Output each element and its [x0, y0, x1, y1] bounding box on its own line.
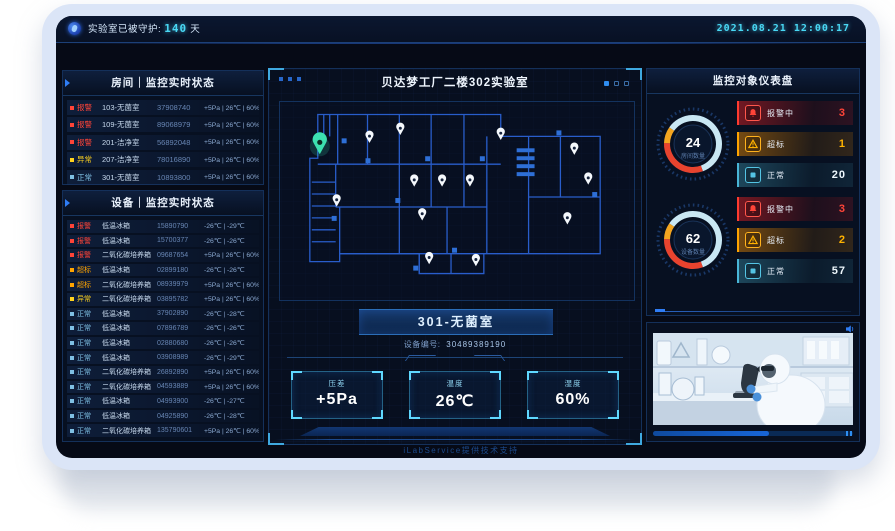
sensor-pin-icon[interactable]: [563, 212, 571, 224]
status-dot-icon: [70, 312, 74, 316]
code-cell: 02880680: [157, 340, 204, 347]
dashboard-screen: 实验室已被守护: 140 天 2021.08.21 12:00:17 房间｜监控…: [56, 16, 866, 458]
code-cell: 56892048: [157, 138, 204, 147]
sensor-pin-icon[interactable]: [396, 123, 404, 135]
name-cell: 二氧化碳培养箱: [101, 426, 157, 436]
name-cell: 低温冰箱: [101, 396, 157, 406]
metrics-cell: -26℃ | -26℃: [204, 324, 259, 332]
square-icon: [748, 266, 758, 276]
status-dot-icon: [70, 123, 74, 127]
status-dot-icon: [70, 158, 74, 162]
square-icon: [748, 170, 758, 180]
name-cell: 二氧化碳培养箱: [101, 294, 157, 304]
name-cell: 207-洁净室: [101, 154, 157, 165]
code-cell: 15700377: [157, 237, 204, 244]
status-dot-icon: [70, 399, 74, 403]
status-stat-alarm: 报警中3: [737, 101, 853, 125]
code-cell: 37908740: [157, 103, 204, 112]
sensor-pin-icon[interactable]: [438, 174, 446, 186]
devices-table: 报警低温冰箱15890790-26℃ | -29℃报警低温冰箱15700377-…: [63, 216, 263, 441]
pagination-dot[interactable]: [614, 81, 619, 86]
metrics-cell: +5Pa | 26℃ | 60%: [204, 138, 259, 146]
alarm-icon: [745, 201, 761, 217]
status-cell: 正常: [67, 338, 101, 348]
sensor-pin-icon[interactable]: [365, 131, 373, 143]
name-cell: 201-洁净室: [101, 137, 157, 148]
lab-title: 贝达梦工厂二楼302实验室: [269, 69, 641, 97]
status-cell: 正常: [67, 323, 101, 333]
bottom-decor-bar: [300, 427, 610, 436]
status-dot-icon: [70, 239, 74, 243]
code-cell: 04993900: [157, 398, 204, 405]
status-dot-icon: [70, 175, 74, 179]
name-cell: 低温冰箱: [101, 353, 157, 363]
stat-value: 3: [839, 203, 846, 215]
stat-value: 3: [839, 107, 846, 119]
device-number-line: 设备编号: 30489389190: [269, 339, 641, 350]
stat-label: 正常: [767, 170, 785, 181]
status-stat-normal: 正常57: [737, 259, 853, 283]
status-dot-icon: [70, 140, 74, 144]
metrics-cell: -26℃ | -29℃: [204, 222, 259, 230]
datetime: 2021.08.21 12:00:17: [717, 16, 850, 42]
panel-arrow-icon: [65, 199, 70, 207]
name-cell: 低温冰箱: [101, 309, 157, 319]
status-dot-icon: [70, 414, 74, 418]
table-row[interactable]: 正常低温冰箱37902890-26℃ | -28℃: [67, 308, 259, 321]
sensor-pin-icon[interactable]: [570, 143, 578, 155]
name-cell: 301-无菌室: [101, 172, 157, 183]
environment-metrics: 压差 +5Pa 温度 26℃ 湿度 60%: [291, 371, 619, 419]
status-cell: 异常: [67, 154, 101, 165]
devices-status-panel: 设备｜监控实时状态 报警低温冰箱15890790-26℃ | -29℃报警低温冰…: [62, 190, 264, 442]
metrics-cell: +5Pa | 26℃ | 60%: [204, 104, 259, 112]
warning-triangle-icon: [748, 139, 758, 149]
name-cell: 二氧化碳培养箱: [101, 367, 157, 377]
code-cell: 37902890: [157, 310, 204, 317]
status-cell: 正常: [67, 411, 101, 421]
table-row[interactable]: 超标低温冰箱02899180-26℃ | -26℃: [67, 264, 259, 277]
code-cell: 02899180: [157, 267, 204, 274]
code-cell: 15890790: [157, 223, 204, 230]
table-row[interactable]: 报警低温冰箱15700377-26℃ | -26℃: [67, 235, 259, 248]
status-dot-icon: [70, 253, 74, 257]
metrics-cell: +5Pa | 26℃ | 60%: [204, 173, 259, 181]
status-stat-alarm: 报警中3: [737, 197, 853, 221]
metrics-cell: +5Pa | 26℃ | 60%: [204, 156, 259, 164]
panel-arrow-icon: [65, 79, 70, 87]
gauge-label: 房间数量: [681, 152, 705, 160]
speaker-icon[interactable]: [845, 325, 855, 333]
table-row[interactable]: 报警201-洁净室56892048+5Pa | 26℃ | 60%: [67, 135, 259, 150]
status-dot-icon: [70, 341, 74, 345]
pagination-dot[interactable]: [604, 81, 609, 86]
over-icon: [745, 136, 761, 152]
name-cell: 二氧化碳培养箱: [101, 382, 157, 392]
metrics-cell: +5Pa | 26℃ | 60%: [204, 295, 259, 303]
stat-label: 正常: [767, 266, 785, 277]
name-cell: 低温冰箱: [101, 323, 157, 333]
normal-icon: [745, 167, 761, 183]
selected-room-label: 301-无菌室: [359, 309, 553, 335]
donut-gauge: 62设备数量: [651, 197, 735, 283]
lab-video-card: [646, 322, 860, 442]
status-cell: 超标: [67, 265, 101, 275]
status-cell: 正常: [67, 309, 101, 319]
status-stat-normal: 正常20: [737, 163, 853, 187]
status-dot-icon: [70, 429, 74, 433]
floor-plan-map[interactable]: [280, 102, 632, 298]
name-cell: 二氧化碳培养箱: [101, 280, 157, 290]
divider-decor: [287, 357, 623, 358]
name-cell: 二氧化碳培养箱: [101, 250, 157, 260]
name-cell: 低温冰箱: [101, 411, 157, 421]
guard-days-text: 实验室已被守护: 140 天: [88, 16, 200, 42]
page: 实验室已被守护: 140 天 2021.08.21 12:00:17 房间｜监控…: [0, 0, 895, 531]
table-row[interactable]: 超标二氧化碳培养箱08939979+5Pa | 26℃ | 60%: [67, 278, 259, 291]
name-cell: 103-无菌室: [101, 102, 157, 113]
table-row[interactable]: 正常低温冰箱07896789-26℃ | -26℃: [67, 322, 259, 335]
lab-camera-image[interactable]: [653, 333, 853, 425]
bottom-decor-line: [275, 439, 635, 440]
bell-icon: [748, 204, 758, 214]
status-cell: 正常: [67, 382, 101, 392]
metric-label: 温度: [410, 378, 500, 389]
table-row[interactable]: 报警109-无菌室89068979+5Pa | 26℃ | 60%: [67, 117, 259, 132]
gauges-panel-title: 监控对象仪表盘: [647, 69, 859, 94]
lab-map-panel: 贝达梦工厂二楼302实验室: [268, 68, 642, 445]
table-row[interactable]: 报警低温冰箱15890790-26℃ | -29℃: [67, 220, 259, 233]
status-cell: 正常: [67, 353, 101, 363]
bell-icon: [748, 108, 758, 118]
rooms-status-panel: 房间｜监控实时状态 报警103-无菌室37908740+5Pa | 26℃ | …: [62, 70, 264, 185]
metrics-cell: -26℃ | -26℃: [204, 237, 259, 245]
sensor-pin-icon[interactable]: [425, 252, 433, 264]
status-cell: 报警: [67, 137, 101, 148]
status-cell: 正常: [67, 367, 101, 377]
metric-value: 60%: [528, 391, 618, 409]
stat-value: 2: [839, 234, 846, 246]
app-logo-icon: [68, 22, 81, 35]
code-cell: 04593889: [157, 383, 204, 390]
corner-bracket-icon: [626, 68, 642, 80]
rooms-panel-title: 房间｜监控实时状态: [63, 71, 263, 96]
pagination-dot[interactable]: [624, 81, 629, 86]
table-row[interactable]: 正常低温冰箱04925890-26℃ | -28℃: [67, 410, 259, 423]
metric-label: 湿度: [528, 378, 618, 389]
table-row[interactable]: 正常二氧化碳培养箱26892890+5Pa | 26℃ | 60%: [67, 366, 259, 379]
status-stat-over: 超标1: [737, 132, 853, 156]
panel-foot-line: [655, 311, 851, 312]
sensor-pin-icon[interactable]: [584, 172, 592, 184]
status-cell: 正常: [67, 396, 101, 406]
table-row[interactable]: 正常301-无菌室10893800+5Pa | 26℃ | 60%: [67, 170, 259, 185]
gauge-value: 62: [686, 231, 700, 246]
status-dot-icon: [70, 297, 74, 301]
gauge-group: 24房间数量报警中3超标1正常20: [647, 94, 859, 190]
name-cell: 低温冰箱: [101, 265, 157, 275]
donut-gauge: 24房间数量: [651, 101, 735, 187]
metrics-cell: +5Pa | 26℃ | 60%: [204, 383, 259, 391]
code-cell: 78016890: [157, 155, 204, 164]
pause-button[interactable]: [846, 431, 852, 436]
metric-box: 压差 +5Pa: [291, 371, 383, 419]
sensor-pin-icon[interactable]: [418, 208, 426, 220]
gauge-stats: 报警中3超标2正常57: [737, 197, 853, 283]
sensor-pin-icon[interactable]: [466, 174, 474, 186]
status-cell: 报警: [67, 236, 101, 246]
video-progress-fill: [653, 431, 769, 436]
status-dot-icon: [70, 283, 74, 287]
gauge-stats: 报警中3超标1正常20: [737, 101, 853, 187]
metrics-cell: -26℃ | -29℃: [204, 354, 259, 362]
alarm-icon: [745, 105, 761, 121]
metric-value: +5Pa: [292, 391, 382, 409]
name-cell: 低温冰箱: [101, 236, 157, 246]
stat-label: 超标: [767, 139, 785, 150]
metrics-cell: +5Pa | 26℃ | 60%: [204, 427, 259, 435]
stat-label: 报警中: [767, 204, 794, 215]
table-row[interactable]: 正常二氧化碳培养箱04593889+5Pa | 26℃ | 60%: [67, 381, 259, 394]
guard-unit: 天: [190, 24, 200, 35]
metrics-cell: -26℃ | -28℃: [204, 310, 259, 318]
device-number-label: 设备编号:: [404, 340, 441, 349]
table-row[interactable]: 异常二氧化碳培养箱03895782+5Pa | 26℃ | 60%: [67, 293, 259, 306]
gauge-value: 24: [686, 135, 701, 150]
top-bar: 实验室已被守护: 140 天 2021.08.21 12:00:17: [56, 16, 866, 43]
stat-value: 57: [832, 265, 846, 277]
status-cell: 报警: [67, 221, 101, 231]
stat-value: 20: [832, 169, 846, 181]
stat-value: 1: [839, 138, 846, 150]
deco-ticks: [279, 77, 305, 81]
code-cell: 09687654: [157, 252, 204, 259]
footer-credit: iLabService提供技术支持: [56, 445, 866, 456]
code-cell: 07896789: [157, 325, 204, 332]
map-pins[interactable]: [333, 123, 593, 267]
status-dot-icon: [70, 356, 74, 360]
metrics-cell: +5Pa | 26℃ | 60%: [204, 121, 259, 129]
status-dot-icon: [70, 326, 74, 330]
normal-icon: [745, 263, 761, 279]
code-cell: 135790601: [157, 427, 204, 434]
status-dot-icon: [70, 106, 74, 110]
table-row[interactable]: 正常低温冰箱02880680-26℃ | -26℃: [67, 337, 259, 350]
rooms-table: 报警103-无菌室37908740+5Pa | 26℃ | 60%报警109-无…: [63, 96, 263, 189]
metric-value: 26℃: [410, 391, 500, 411]
status-cell: 报警: [67, 250, 101, 260]
status-dot-icon: [70, 370, 74, 374]
floor-plan: [279, 101, 635, 301]
table-row[interactable]: 正常二氧化碳培养箱135790601+5Pa | 26℃ | 60%: [67, 424, 259, 437]
table-row[interactable]: 正常低温冰箱03908989-26℃ | -29℃: [67, 351, 259, 364]
metrics-cell: +5Pa | 26℃ | 60%: [204, 281, 259, 289]
sensor-pin-icon[interactable]: [410, 174, 418, 186]
code-cell: 26892890: [157, 369, 204, 376]
name-cell: 低温冰箱: [101, 338, 157, 348]
over-icon: [745, 232, 761, 248]
metrics-cell: -26℃ | -26℃: [204, 339, 259, 347]
status-cell: 正常: [67, 426, 101, 436]
devices-panel-title: 设备｜监控实时状态: [63, 191, 263, 216]
metrics-cell: -26℃ | -27℃: [204, 397, 259, 405]
metric-label: 压差: [292, 378, 382, 389]
metric-box: 温度 26℃: [409, 371, 501, 419]
pagination-dots: [604, 81, 629, 86]
code-cell: 03908989: [157, 354, 204, 361]
stat-label: 报警中: [767, 108, 794, 119]
status-cell: 报警: [67, 119, 101, 130]
table-row[interactable]: 报警103-无菌室37908740+5Pa | 26℃ | 60%: [67, 100, 259, 115]
metrics-cell: +5Pa | 26℃ | 60%: [204, 251, 259, 259]
selected-room-pin-icon[interactable]: [310, 132, 330, 156]
table-row[interactable]: 正常低温冰箱04993900-26℃ | -27℃: [67, 395, 259, 408]
code-cell: 03895782: [157, 296, 204, 303]
metrics-cell: -26℃ | -26℃: [204, 266, 259, 274]
sensor-pin-icon[interactable]: [472, 254, 480, 266]
status-dot-icon: [70, 224, 74, 228]
sensor-pin-icon[interactable]: [497, 128, 505, 140]
status-dot-icon: [70, 268, 74, 272]
code-cell: 10893800: [157, 173, 204, 182]
code-cell: 04925890: [157, 413, 204, 420]
metrics-cell: +5Pa | 26℃ | 60%: [204, 368, 259, 376]
table-row[interactable]: 异常207-洁净室78016890+5Pa | 26℃ | 60%: [67, 152, 259, 167]
guard-days-value: 140: [164, 22, 187, 35]
name-cell: 低温冰箱: [101, 221, 157, 231]
metric-box: 湿度 60%: [527, 371, 619, 419]
gauge-label: 设备数量: [681, 248, 705, 256]
monitor-gauges-panel: 监控对象仪表盘 24房间数量报警中3超标1正常2062设备数量报警中3超标2正常…: [646, 68, 860, 316]
video-progress-bar[interactable]: [653, 431, 853, 436]
guard-label: 实验室已被守护:: [88, 24, 161, 35]
status-cell: 正常: [67, 172, 101, 183]
code-cell: 89068979: [157, 120, 204, 129]
status-cell: 超标: [67, 280, 101, 290]
status-cell: 报警: [67, 102, 101, 113]
metrics-cell: -26℃ | -28℃: [204, 412, 259, 420]
device-number-value: 30489389190: [446, 340, 506, 349]
status-stat-over: 超标2: [737, 228, 853, 252]
code-cell: 08939979: [157, 281, 204, 288]
sensor-pin-icon[interactable]: [333, 194, 341, 206]
gauge-group: 62设备数量报警中3超标2正常57: [647, 190, 859, 286]
name-cell: 109-无菌室: [101, 119, 157, 130]
status-cell: 异常: [67, 294, 101, 304]
stat-label: 超标: [767, 235, 785, 246]
status-dot-icon: [70, 385, 74, 389]
warning-triangle-icon: [748, 235, 758, 245]
gauges-container: 24房间数量报警中3超标1正常2062设备数量报警中3超标2正常57: [647, 94, 859, 286]
table-row[interactable]: 报警二氧化碳培养箱09687654+5Pa | 26℃ | 60%: [67, 249, 259, 262]
